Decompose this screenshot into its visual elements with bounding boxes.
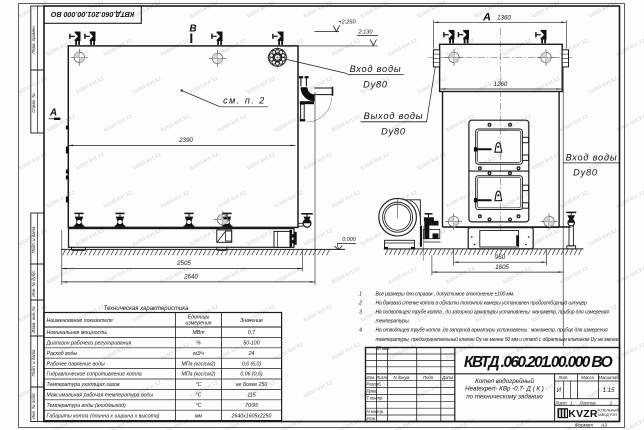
svg-text:Справ. №: Справ. №: [31, 93, 36, 113]
svg-text:Наименование показателя: Наименование показателя: [47, 318, 113, 324]
svg-text:1360: 1360: [497, 14, 511, 21]
svg-text:24: 24: [248, 351, 255, 357]
svg-text:Температура воды (вход/выход): Температура воды (вход/выход): [47, 403, 126, 409]
svg-text:А3: А3: [600, 422, 607, 427]
svg-text:Инв. № дубл.: Инв. № дубл.: [31, 270, 36, 296]
svg-text:Пров.: Пров.: [367, 388, 378, 393]
svg-text:Изм.: Изм.: [366, 375, 375, 380]
svg-text:по техническому заданию: по техническому заданию: [466, 393, 543, 400]
svg-text:Габариты котла (длинна х ширин: Габариты котла (длинна х ширина х высота…: [47, 413, 160, 419]
svg-text:Дата: Дата: [441, 375, 454, 380]
svg-text:Dy80: Dy80: [573, 168, 598, 178]
svg-text:0,7: 0,7: [248, 330, 256, 336]
svg-text:ЗАВОД РЭП: ЗАВОД РЭП: [598, 413, 618, 417]
svg-text:мм: мм: [195, 413, 203, 419]
svg-text:МПа (кгс/см2): МПа (кгс/см2): [182, 361, 216, 367]
svg-text:Лист: Лист: [554, 400, 567, 405]
svg-text:%: %: [196, 341, 201, 347]
svg-text:Рабочее давление воды: Рабочее давление воды: [47, 361, 105, 367]
svg-text:Максимальная рабочая температу: Максимальная рабочая температура воды: [47, 393, 154, 399]
svg-text:Вход воды: Вход воды: [350, 64, 402, 74]
svg-text:Расход воды: Расход воды: [47, 351, 78, 357]
svg-text:0.000: 0.000: [342, 237, 356, 243]
svg-text:960: 960: [495, 254, 506, 261]
svg-text:Т.контр.: Т.контр.: [367, 395, 384, 400]
svg-text:температуры, предохранительный: температуры, предохранительный клапан Dу…: [376, 336, 619, 343]
svg-text:Инв. № подл.: Инв. № подл.: [31, 392, 36, 419]
svg-text:1260: 1260: [494, 81, 508, 88]
svg-text:2390: 2390: [178, 137, 193, 144]
svg-text:2: 2: [609, 400, 613, 405]
svg-text:измерения: измерения: [186, 321, 212, 327]
svg-text:3: 3: [359, 310, 362, 316]
svg-text:Лист: Лист: [375, 375, 387, 380]
svg-text:На отводящей трубе котла ,до з: На отводящей трубе котла ,до запорной ар…: [376, 327, 608, 334]
svg-text:Масса: Масса: [581, 375, 595, 380]
svg-text:В: В: [189, 24, 196, 35]
svg-text:А: А: [49, 108, 57, 119]
svg-text:Гидравлическое сопротивление к: Гидравлическое сопротивление котла: [47, 372, 142, 378]
svg-text:2640: 2640: [183, 274, 198, 281]
svg-text:50 мм.: 50 мм.: [376, 346, 390, 352]
svg-text:температуры.: температуры.: [376, 319, 410, 325]
svg-text:Dy80: Dy80: [381, 127, 406, 137]
svg-text:Лит.: Лит.: [557, 375, 568, 380]
svg-text:Dy80: Dy80: [363, 79, 388, 89]
svg-text:КВТД .060.201.00.000 ВО: КВТД .060.201.00.000 ВО: [464, 354, 613, 371]
svg-text:Взам. инв. №: Взам. инв. №: [31, 306, 36, 333]
svg-text:МВт: МВт: [192, 330, 205, 336]
svg-text:Н.контр.: Н.контр.: [367, 409, 385, 414]
svg-text:2.130: 2.130: [358, 30, 374, 36]
svg-text:Подп. и дата: Подп. и дата: [31, 349, 36, 377]
svg-text:+2.250: +2.250: [338, 19, 356, 25]
svg-text:Подп. и дата: Подп. и дата: [31, 226, 36, 254]
svg-text:0,6 (6,0): 0,6 (6,0): [242, 361, 262, 367]
svg-text:1605: 1605: [495, 264, 509, 271]
svg-text:Температура уходящих газов: Температура уходящих газов: [47, 382, 120, 388]
svg-text:Значение: Значение: [240, 318, 263, 324]
svg-text:Диапазон рабочего регулировани: Диапазон рабочего регулирования: [46, 341, 132, 347]
svg-text:МПа (кгс/см2): МПа (кгс/см2): [182, 372, 216, 378]
svg-text:Утв.: Утв.: [367, 416, 377, 421]
svg-text:Все размеры для справок , допу: Все размеры для справок , допустимое отк…: [376, 291, 515, 297]
svg-text:KVZR: KVZR: [568, 408, 598, 420]
svg-text:Выход воды: Выход воды: [364, 111, 424, 121]
svg-text:КОТЕЛЬНЫЙ: КОТЕЛЬНЫЙ: [598, 409, 620, 413]
svg-text:2505: 2505: [176, 260, 191, 267]
svg-text:70/95: 70/95: [245, 403, 258, 409]
svg-text:Техническая характеристика: Техническая характеристика: [104, 306, 190, 312]
svg-text:°С: °С: [196, 382, 202, 388]
svg-text:А: А: [482, 11, 491, 23]
svg-text:1:15: 1:15: [603, 388, 615, 394]
svg-text:см. п. 2: см. п. 2: [223, 96, 266, 106]
svg-text:Heatexpert- КВр -0,7- Д ( К ): Heatexpert- КВр -0,7- Д ( К ): [465, 386, 544, 393]
svg-text:2640х1605х2250: 2640х1605х2250: [231, 413, 272, 419]
svg-text:0,06 (0,6): 0,06 (0,6): [240, 372, 262, 378]
svg-text:Подп.: Подп.: [423, 375, 434, 380]
svg-text:Разраб.: Разраб.: [367, 382, 382, 387]
svg-text:Формат: Формат: [575, 422, 593, 427]
svg-text:На подводящей трубе котла ,: На подводящей трубе котла , до запорной …: [376, 309, 610, 316]
svg-text:Котел водогрейный: Котел водогрейный: [475, 378, 534, 385]
svg-text:N докум.: N докум.: [394, 375, 411, 380]
svg-text:не более 250: не более 250: [236, 382, 268, 388]
svg-text:°С: °С: [196, 403, 202, 409]
svg-text:Вход воды: Вход воды: [566, 152, 618, 162]
svg-text:115: 115: [247, 393, 255, 399]
svg-text:КВТД.060.201.00.000 ВО: КВТД.060.201.00.000 ВО: [51, 10, 135, 19]
svg-text:50-100: 50-100: [243, 341, 259, 347]
svg-text:И: И: [557, 388, 562, 394]
svg-text:Перв. примен.: Перв. примен.: [31, 25, 36, 54]
svg-text:2: 2: [358, 300, 362, 306]
svg-text:м3/ч: м3/ч: [193, 351, 204, 357]
svg-text:На боковой стенке котла в обла: На боковой стенке котла в области топочн…: [376, 299, 588, 306]
svg-text:4: 4: [359, 328, 362, 334]
svg-text:Номинальная мощность: Номинальная мощность: [47, 330, 108, 336]
svg-text:Листов: Листов: [579, 400, 597, 405]
svg-text:Единицы: Единицы: [188, 314, 210, 320]
svg-text:°С: °С: [196, 393, 202, 399]
svg-text:1: 1: [359, 291, 362, 297]
svg-text:Масштаб: Масштаб: [598, 375, 619, 380]
